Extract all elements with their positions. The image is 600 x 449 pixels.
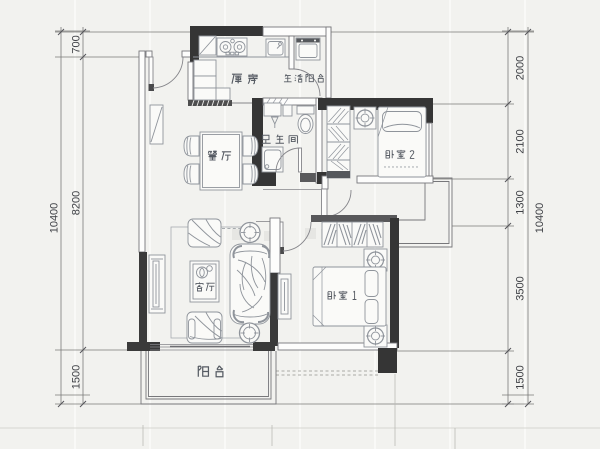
svg-text:700: 700 (71, 35, 83, 53)
svg-text:10400: 10400 (534, 203, 546, 234)
svg-text:1300: 1300 (515, 190, 527, 214)
svg-text:10400: 10400 (49, 203, 61, 234)
svg-text:8200: 8200 (71, 191, 83, 215)
svg-text:3500: 3500 (515, 276, 527, 300)
svg-text:1500: 1500 (71, 365, 83, 389)
svg-text:1500: 1500 (515, 365, 527, 389)
svg-text:2000: 2000 (515, 56, 527, 80)
svg-text:2100: 2100 (515, 129, 527, 153)
